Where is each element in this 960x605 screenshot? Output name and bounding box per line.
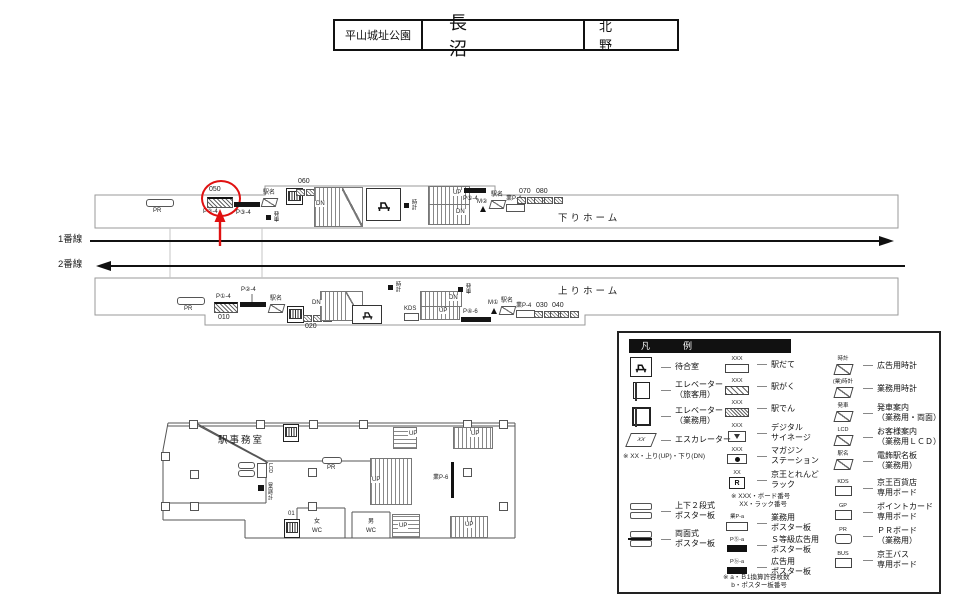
ekigaku-icon bbox=[725, 386, 749, 395]
station-sign-bottom-label: 駅名 bbox=[270, 296, 282, 302]
legend-item-double-sided-poster: 両面式 ポスター板 bbox=[625, 529, 715, 549]
two-tier-board bbox=[238, 470, 255, 477]
service-clock-label: (業)時計 bbox=[267, 482, 272, 510]
stairs-north-up-label: UP bbox=[408, 431, 418, 437]
customer-lcd-icon bbox=[833, 435, 853, 446]
legend-item-ekiden: XXX 駅でん bbox=[721, 401, 795, 417]
bus-board-icon bbox=[835, 558, 852, 568]
bench-icon bbox=[376, 197, 392, 213]
legend-item-customer-lcd: LCD お客様案内 （業務用ＬＣＤ） bbox=[827, 427, 939, 447]
poster-p1-label: P①-4 bbox=[216, 294, 231, 300]
station-name-sign-icon bbox=[833, 459, 853, 470]
kds-board-label: KDS bbox=[404, 306, 416, 312]
poster-p5-label: P⑤-4 bbox=[463, 196, 478, 202]
pr-board-icon bbox=[835, 534, 852, 544]
digital-signage-icon bbox=[728, 431, 746, 442]
legend-item-service-poster: 業P-a 業務用 ポスター板 bbox=[721, 513, 811, 533]
service-poster-p6-bar bbox=[451, 462, 454, 498]
escalator-note: ※ XX・上り(UP)・下り(DN) bbox=[623, 453, 705, 461]
ekiden-icon bbox=[725, 408, 749, 417]
legend-item-two-tier-poster: 上下２段式 ポスター板 bbox=[625, 501, 715, 521]
legend-item-kds-board: KDS 京王百貨店 専用ボード bbox=[827, 478, 917, 498]
legend-item-s-grade-poster: PⓈ-a Ｓ等級広告用 ポスター板 bbox=[721, 535, 819, 555]
board-080-number: 080 bbox=[536, 188, 548, 195]
stairs-dn-bottom-label: DN bbox=[311, 300, 322, 306]
column bbox=[359, 420, 368, 429]
station-sign-icon-bottom bbox=[268, 304, 286, 313]
next-station: 北 野 bbox=[583, 19, 679, 51]
mens-wc-label: 男 WC bbox=[366, 518, 376, 536]
clock-bottom-label: 時計 bbox=[394, 281, 400, 297]
legend-item-ad-clock: 時計 広告用時計 bbox=[827, 357, 917, 375]
elevator-concourse-passenger bbox=[284, 519, 300, 538]
board-010-number: 010 bbox=[218, 314, 230, 321]
station-sign-bottom2-label: 駅名 bbox=[501, 298, 513, 304]
station-header: 平山城址公園 長 沼 北 野 bbox=[333, 19, 679, 51]
stairs-up-bottom-label: UP bbox=[438, 308, 448, 314]
current-station: 長 沼 bbox=[421, 19, 585, 51]
elevator-passenger-icon bbox=[633, 382, 650, 399]
kds-board-icon bbox=[835, 486, 852, 496]
prev-station: 平山城址公園 bbox=[333, 19, 423, 51]
stairs-se-up-label: UP bbox=[464, 522, 474, 528]
service-clock-legend-icon bbox=[833, 387, 853, 398]
escalator-dn-top bbox=[342, 187, 363, 227]
column bbox=[190, 502, 199, 511]
column bbox=[189, 420, 198, 429]
column bbox=[309, 420, 318, 429]
clock-top-icon bbox=[404, 203, 409, 208]
clock-top-label: 時計 bbox=[410, 199, 416, 215]
elevator-concourse-service bbox=[283, 424, 299, 442]
departure-sign-bottom-label: 発車 bbox=[464, 283, 470, 299]
gp-board-icon bbox=[835, 510, 852, 520]
station-sign-icon-top bbox=[261, 198, 279, 207]
legend-item-magazine-station: XXX マガジン ステーション bbox=[721, 446, 819, 466]
column bbox=[161, 452, 170, 461]
board-070-number: 070 bbox=[519, 188, 531, 195]
service-poster-bottom-label: 業P-4 bbox=[516, 303, 531, 309]
departure-sign-bottom-icon bbox=[458, 287, 463, 292]
escalator-icon: XX bbox=[625, 433, 657, 447]
legend-title: 凡 例 bbox=[629, 339, 791, 353]
legend-item-gp-board: GP ポイントカード 専用ボード bbox=[827, 502, 933, 522]
legend-item-elevator-passenger: エレベーター （旅客用） bbox=[625, 380, 723, 400]
column bbox=[308, 468, 317, 477]
stairs-dn-top bbox=[314, 187, 344, 227]
poster-p2-bar bbox=[240, 302, 266, 307]
legend-item-bus-board: BUS 京王バス 専用ボード bbox=[827, 550, 917, 570]
station-sign-top2-label: 駅名 bbox=[491, 192, 503, 198]
legend-item-escalator: XX エスカレーター bbox=[625, 433, 731, 447]
board-040 bbox=[550, 311, 579, 318]
station-office-label: 駅事務室 bbox=[218, 436, 264, 446]
stairs-dn-top-label: DN bbox=[315, 201, 326, 207]
legend-item-keio-trend-rack: XXR 京王とれんど ラック bbox=[721, 470, 819, 490]
two-tier-board bbox=[238, 462, 255, 469]
poster-p5-bar bbox=[464, 188, 486, 193]
legend-item-departure-info: 発車 発車案内 （業務用・両面） bbox=[827, 403, 939, 423]
pr-board-top-label: PR bbox=[153, 208, 161, 214]
s-grade-poster-icon bbox=[727, 545, 747, 552]
track1-label: 1番線 bbox=[58, 235, 82, 245]
m2-marker bbox=[480, 206, 486, 212]
service-poster-bottom bbox=[516, 310, 535, 318]
legend-item-service-clock: (業)時計 業務用時計 bbox=[827, 380, 917, 398]
clock-bottom-icon bbox=[388, 285, 393, 290]
legend-item-ekigaku: XXX 駅がく bbox=[721, 379, 795, 395]
column bbox=[499, 420, 508, 429]
pr-board-bottom bbox=[177, 297, 205, 305]
stairs-dn2-bottom-label: DN bbox=[448, 295, 459, 301]
kds-board bbox=[404, 313, 419, 321]
m1-label: M① bbox=[488, 300, 498, 306]
elevator-01-label: 01 bbox=[288, 511, 295, 517]
departure-info-icon bbox=[833, 411, 853, 422]
bench-icon bbox=[361, 308, 374, 321]
womens-wc-label: 女 WC bbox=[312, 518, 322, 536]
poster-p3-bar bbox=[234, 202, 260, 207]
board-030-number: 030 bbox=[536, 302, 548, 309]
poster-p4-label: P④-6 bbox=[463, 309, 478, 315]
poster-p3-label: P③-4 bbox=[236, 210, 251, 216]
board-080 bbox=[534, 197, 563, 204]
station-sign-icon-top2 bbox=[489, 200, 507, 209]
pr-board-concourse-label: PR bbox=[327, 465, 335, 471]
board-010 bbox=[214, 302, 238, 313]
waiting-room-icon bbox=[630, 357, 652, 377]
magazine-station-icon bbox=[727, 454, 747, 464]
stairs-dn2-top-label: DN bbox=[455, 209, 466, 215]
lcd-label: LCD bbox=[267, 463, 272, 481]
ad-poster-icon bbox=[727, 567, 747, 574]
waiting-room-top bbox=[366, 188, 401, 221]
keio-trend-rack-icon: R bbox=[729, 477, 745, 489]
station-sign-icon-bottom2 bbox=[499, 306, 517, 315]
column bbox=[161, 502, 170, 511]
board-060-number: 060 bbox=[298, 178, 310, 185]
column bbox=[256, 420, 265, 429]
service-poster-p6-label: 業P-6 bbox=[433, 475, 448, 481]
legend: 凡 例 待合室 エレベーター （旅客用） エレベーター （業務用） XX エスカ… bbox=[617, 331, 941, 594]
poster-p2-bottom-label: P②-4 bbox=[241, 287, 256, 293]
station-sign-top-label: 駅名 bbox=[263, 190, 275, 196]
stairs-up-top-label: UP bbox=[452, 190, 462, 196]
stairs-ne-up-label: UP bbox=[470, 431, 480, 437]
legend-item-elevator-service: エレベーター （業務用） bbox=[625, 406, 723, 426]
m2-label: M② bbox=[477, 199, 487, 205]
legend-item-pr-board: PR ＰＲボード （業務用） bbox=[827, 526, 917, 546]
ekidate-icon bbox=[725, 364, 749, 373]
stairs-south-up-label: UP bbox=[398, 523, 408, 529]
stairs-main-up-label: UP bbox=[371, 477, 381, 483]
elevator-bottom bbox=[287, 306, 304, 323]
column bbox=[190, 470, 199, 479]
highlight-circle bbox=[201, 180, 241, 217]
service-poster-icon bbox=[726, 522, 748, 531]
departure-sign-top-label: 発車 bbox=[272, 211, 278, 227]
m1-marker bbox=[491, 308, 497, 314]
poster-p4-bar bbox=[461, 317, 491, 322]
pr-board-bottom-label: PR bbox=[184, 306, 192, 312]
waiting-room-bottom bbox=[352, 305, 382, 324]
ad-clock-icon bbox=[833, 364, 853, 375]
column bbox=[463, 468, 472, 477]
pr-board-top bbox=[146, 199, 174, 207]
down-platform-label: 下りホーム bbox=[558, 210, 620, 224]
service-poster-top bbox=[506, 204, 525, 212]
legend-item-ekidate: XXX 駅だて bbox=[721, 357, 795, 373]
departure-sign-top-icon bbox=[266, 215, 271, 220]
station-ad-location-map: 平山城址公園 長 沼 北 野 1番線 2番線 下りホーム PR 050 P②-4… bbox=[0, 0, 960, 605]
column bbox=[499, 502, 508, 511]
board-040-number: 040 bbox=[552, 302, 564, 309]
legend-item-digital-signage: XXX デジタル サイネージ bbox=[721, 423, 811, 443]
board-020-number: 020 bbox=[305, 323, 317, 330]
legend-item-waiting-room: 待合室 bbox=[625, 357, 699, 377]
service-clock-icon bbox=[258, 485, 264, 491]
track2-label: 2番線 bbox=[58, 260, 82, 270]
board-note: ※ XXX・ボード番号 XX・ラック番号 bbox=[731, 493, 790, 510]
column bbox=[308, 502, 317, 511]
poster-note: ※ a・Ｂ1換算許容枚数 b・ポスター板番号 bbox=[723, 574, 789, 591]
double-sided-poster-icon bbox=[630, 531, 652, 547]
up-platform-label: 上りホーム bbox=[558, 283, 620, 297]
stairs-dn-bottom bbox=[320, 291, 348, 321]
two-tier-poster-icon bbox=[630, 503, 652, 519]
pr-board-concourse bbox=[322, 457, 342, 464]
elevator-service-icon bbox=[632, 407, 651, 426]
lcd-icon bbox=[257, 463, 267, 478]
legend-item-station-name-sign: 駅名 電飾駅名板 （業務用） bbox=[827, 451, 917, 471]
